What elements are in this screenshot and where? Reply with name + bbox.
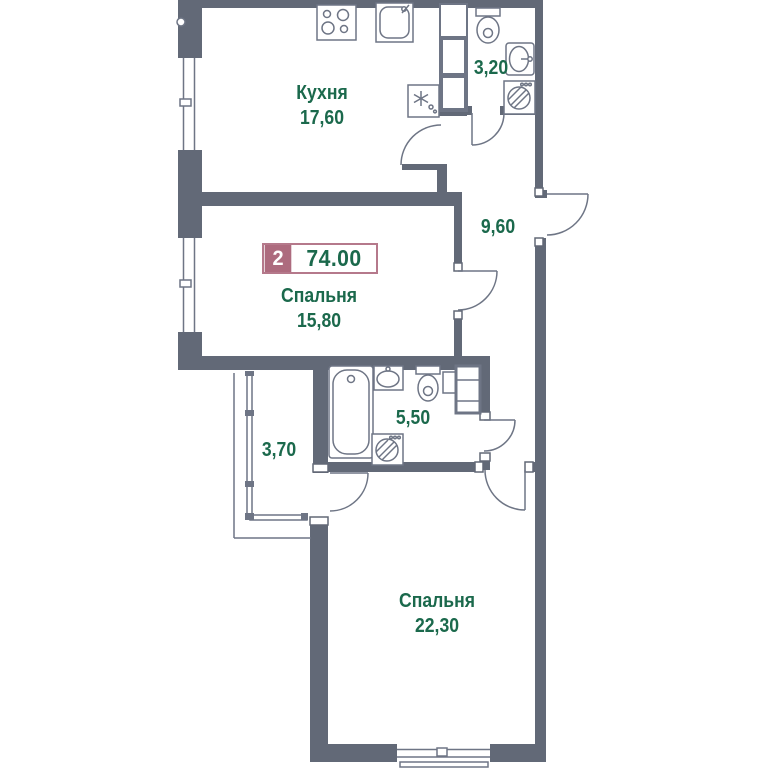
bedroom-middle-label: Спальня 15,80	[281, 284, 357, 334]
door-arc	[485, 470, 525, 510]
bathtub-icon	[329, 366, 373, 458]
kitchen-sink-icon	[376, 3, 413, 42]
room-name: Кухня	[296, 81, 347, 106]
washbasin-icon	[374, 366, 403, 390]
door-arc	[484, 420, 515, 451]
window	[178, 58, 202, 150]
wall	[437, 168, 447, 192]
floor-plan-drawing	[0, 0, 768, 768]
floor-plan: Кухня 17,60 3,20 9,60 Спальня 15,80 5,50…	[0, 0, 768, 768]
closet-icon	[456, 366, 480, 413]
room-name: Спальня	[281, 284, 357, 309]
washbasin-icon	[506, 43, 534, 75]
washing-machine-icon	[372, 434, 403, 465]
wall	[454, 192, 462, 271]
wall	[178, 0, 202, 58]
total-area-badge: 74.00	[295, 245, 372, 272]
room-area: 15,80	[281, 309, 357, 334]
window	[178, 238, 202, 332]
balcony-label: 3,70	[262, 438, 296, 463]
room-area: 17,60	[296, 106, 347, 131]
door-arc	[401, 125, 441, 165]
wall-ring-detail	[177, 18, 185, 26]
door-arc	[547, 194, 588, 235]
bathroom-middle-label: 5,50	[396, 406, 430, 431]
toilet-icon	[476, 8, 500, 43]
wardrobe-icon	[440, 4, 467, 110]
toilet-icon	[416, 366, 440, 401]
window	[397, 744, 490, 767]
wall	[313, 365, 328, 473]
door-arc	[330, 473, 368, 511]
kitchen-label: Кухня 17,60	[296, 81, 347, 131]
shelf-icon	[443, 372, 456, 393]
stove-icon	[317, 5, 356, 40]
door-arc	[458, 271, 497, 310]
wall	[535, 238, 546, 762]
fridge-icon	[408, 85, 439, 117]
wall	[535, 0, 543, 196]
room-area: 22,30	[399, 614, 475, 639]
bathroom-top-label: 3,20	[474, 56, 508, 81]
bedroom-bottom-label: Спальня 22,30	[399, 589, 475, 639]
wall	[178, 192, 462, 206]
washing-machine-icon	[504, 81, 535, 114]
wall	[178, 0, 543, 8]
door-arc	[472, 113, 504, 145]
room-name: Спальня	[399, 589, 475, 614]
apartment-badge: 2 74.00	[262, 243, 378, 274]
wall	[402, 164, 447, 170]
hallway-label: 9,60	[481, 215, 515, 240]
wall	[310, 517, 328, 762]
rooms-count-badge: 2	[265, 245, 292, 272]
